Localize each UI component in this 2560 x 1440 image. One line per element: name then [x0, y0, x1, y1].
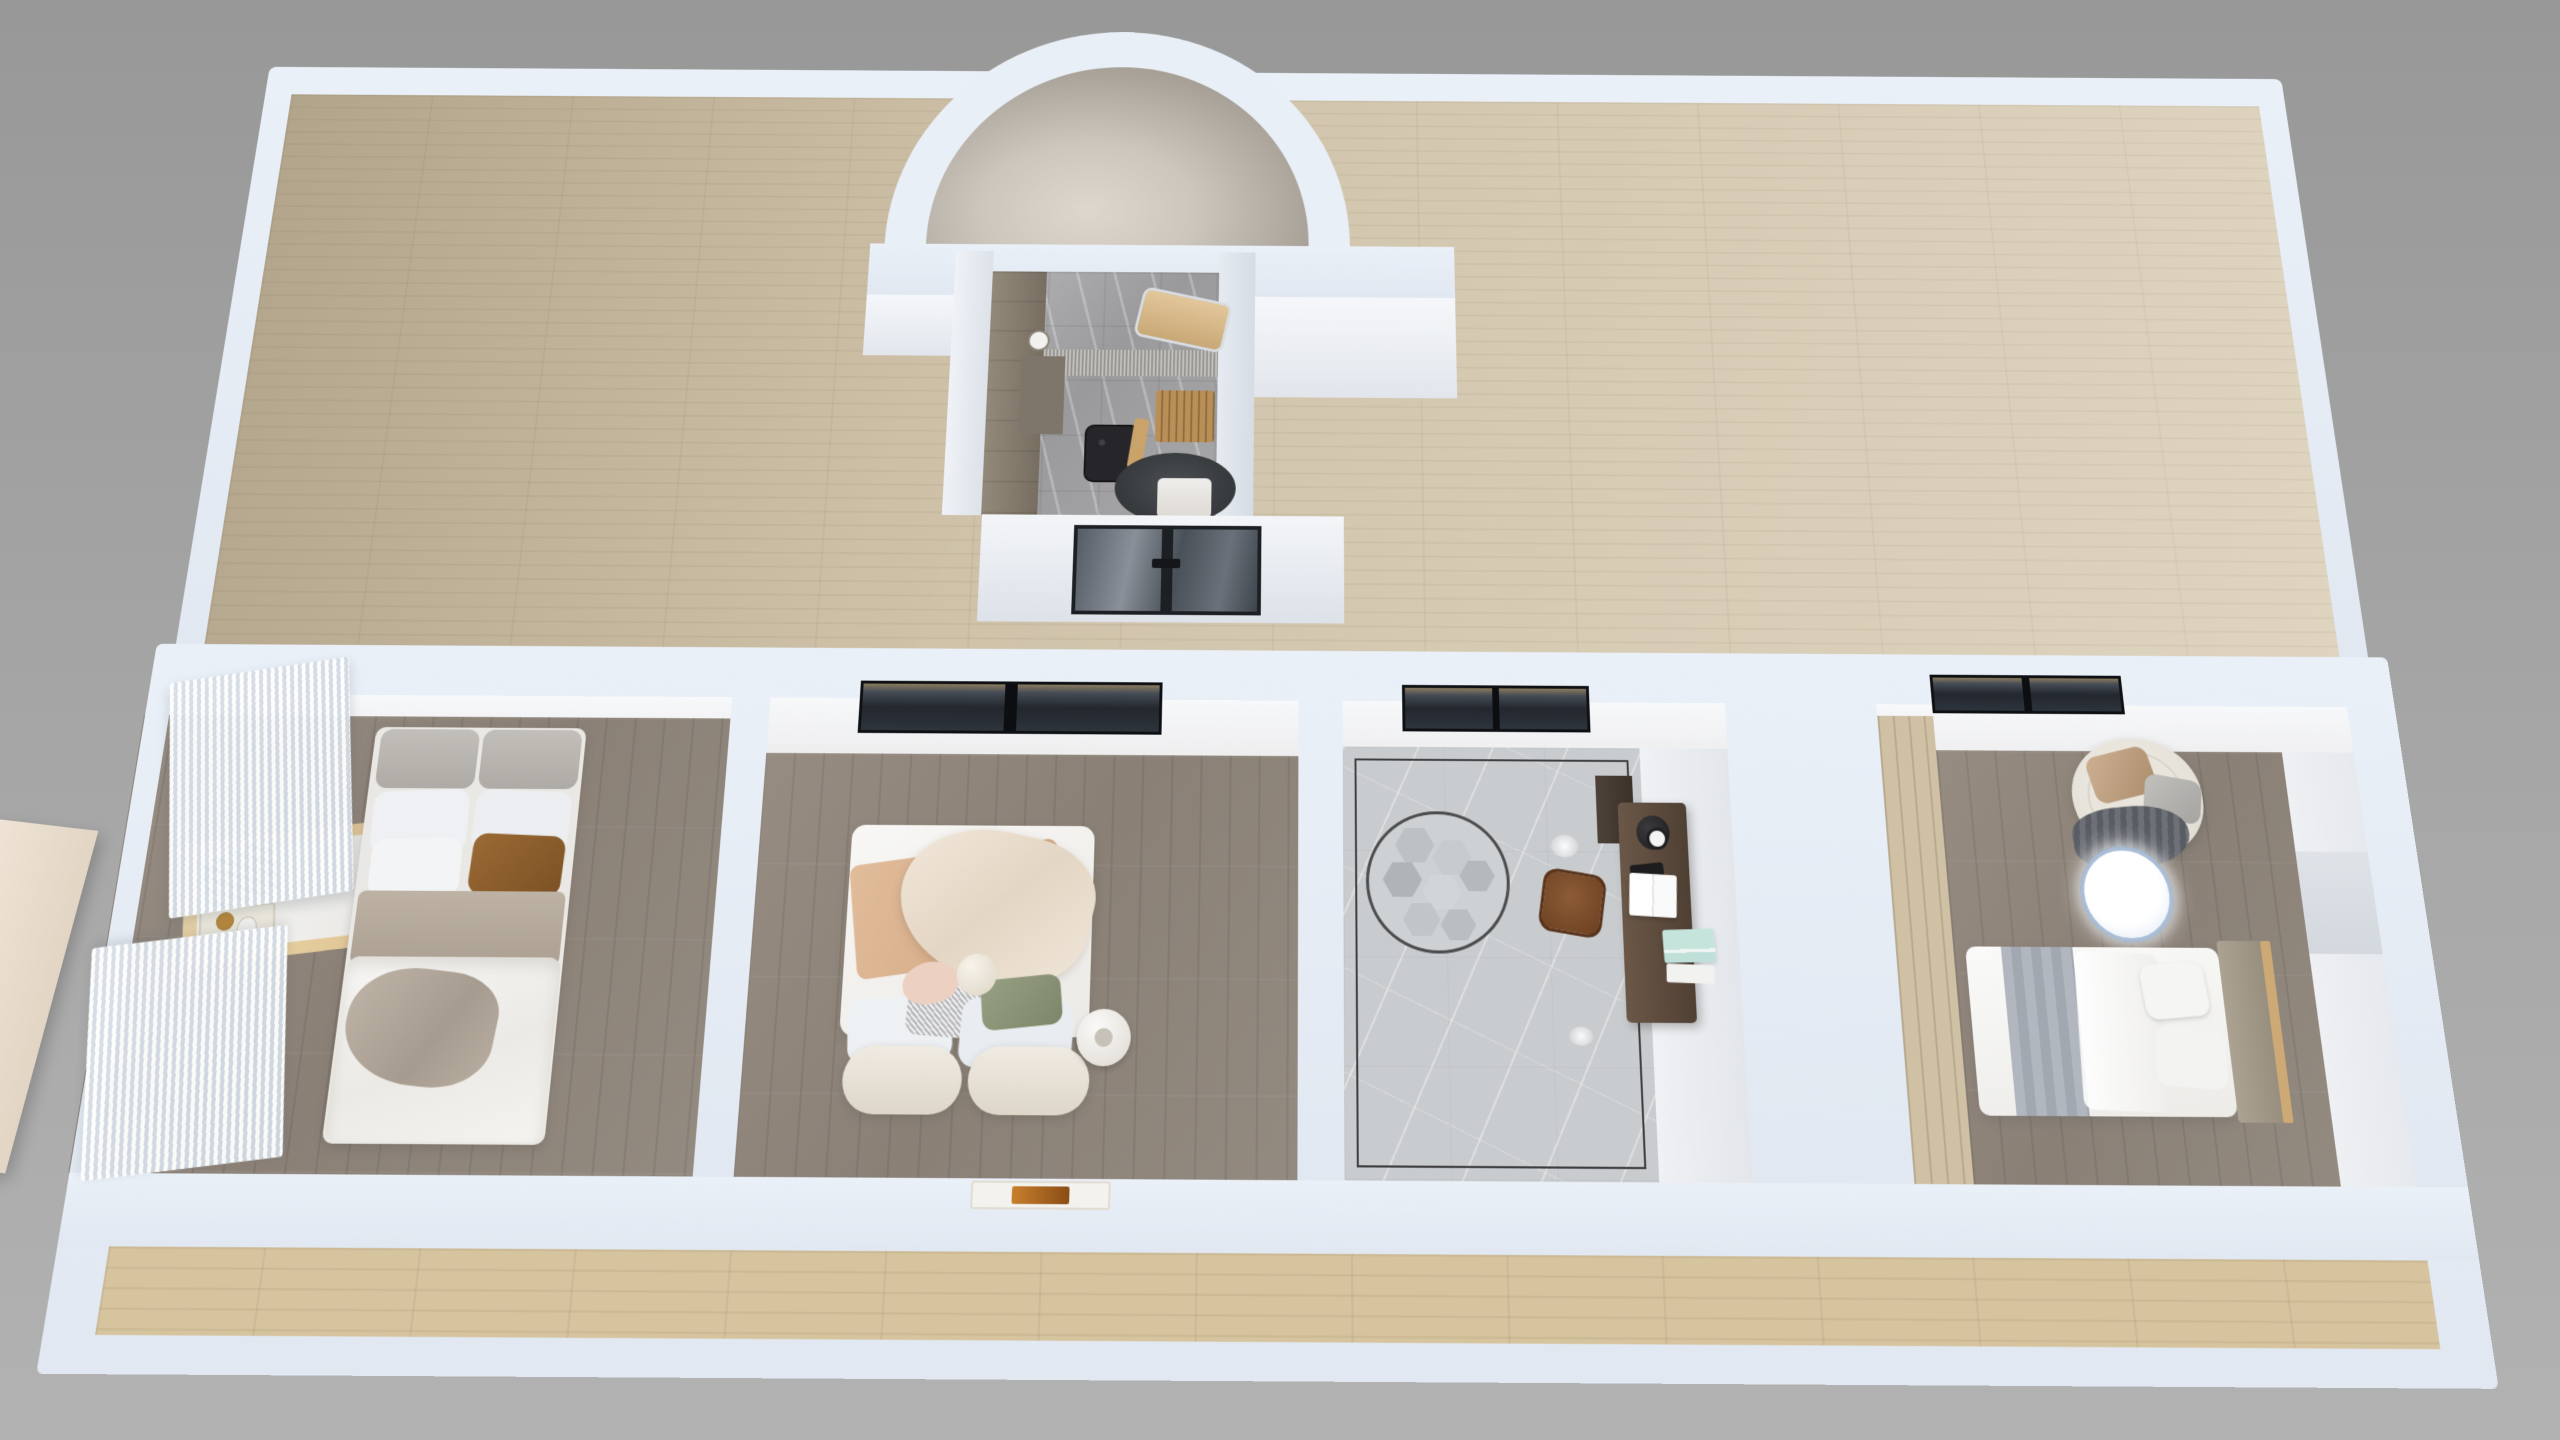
- bed-left-headboard-cushion-a: [374, 729, 480, 789]
- curtain-panel-upper: [169, 656, 354, 919]
- bathroom-glass-door: [1071, 525, 1261, 615]
- bathroom-counter: [1018, 356, 1065, 434]
- bathroom-slatted-mat: [1155, 390, 1215, 442]
- render-canvas: [0, 0, 2560, 1440]
- bed-left-pillow-3: [366, 838, 463, 898]
- floorplan-3d-viewport[interactable]: [63, 51, 2472, 1353]
- floor-tray-art: [1011, 1186, 1069, 1204]
- bed-right-pillow-1: [2138, 961, 2212, 1021]
- skylight-study: [1402, 685, 1591, 733]
- skylight-bedroom-middle: [858, 681, 1163, 735]
- divider-wall-2: [1297, 683, 1344, 1188]
- desk-mint-books: [1662, 929, 1716, 964]
- bed-left-pillow-brown: [466, 833, 567, 898]
- study-light-spot-1: [1551, 835, 1579, 857]
- study-light-spot-2: [1569, 1027, 1594, 1046]
- study-leather-stool: [1537, 867, 1607, 940]
- bed-middle-bolster-left: [840, 1045, 963, 1114]
- skylight-bedroom-right: [1929, 675, 2125, 715]
- bed-left-headboard-cushion-b: [478, 730, 583, 790]
- curtain-panel-lower: [80, 925, 287, 1182]
- desk-lamp-ring: [1646, 828, 1669, 850]
- desk-open-book: [1629, 873, 1677, 919]
- bathroom-towels: [1157, 478, 1212, 518]
- desk-white-books: [1666, 963, 1714, 984]
- bathroom-door-handles: [1152, 559, 1180, 568]
- bed-middle-bolster-right: [966, 1046, 1090, 1115]
- balcony-floor: [95, 1246, 2440, 1349]
- bed-right-pillow-2: [2155, 1026, 2229, 1091]
- bed-left-duvet-taupe: [349, 890, 566, 965]
